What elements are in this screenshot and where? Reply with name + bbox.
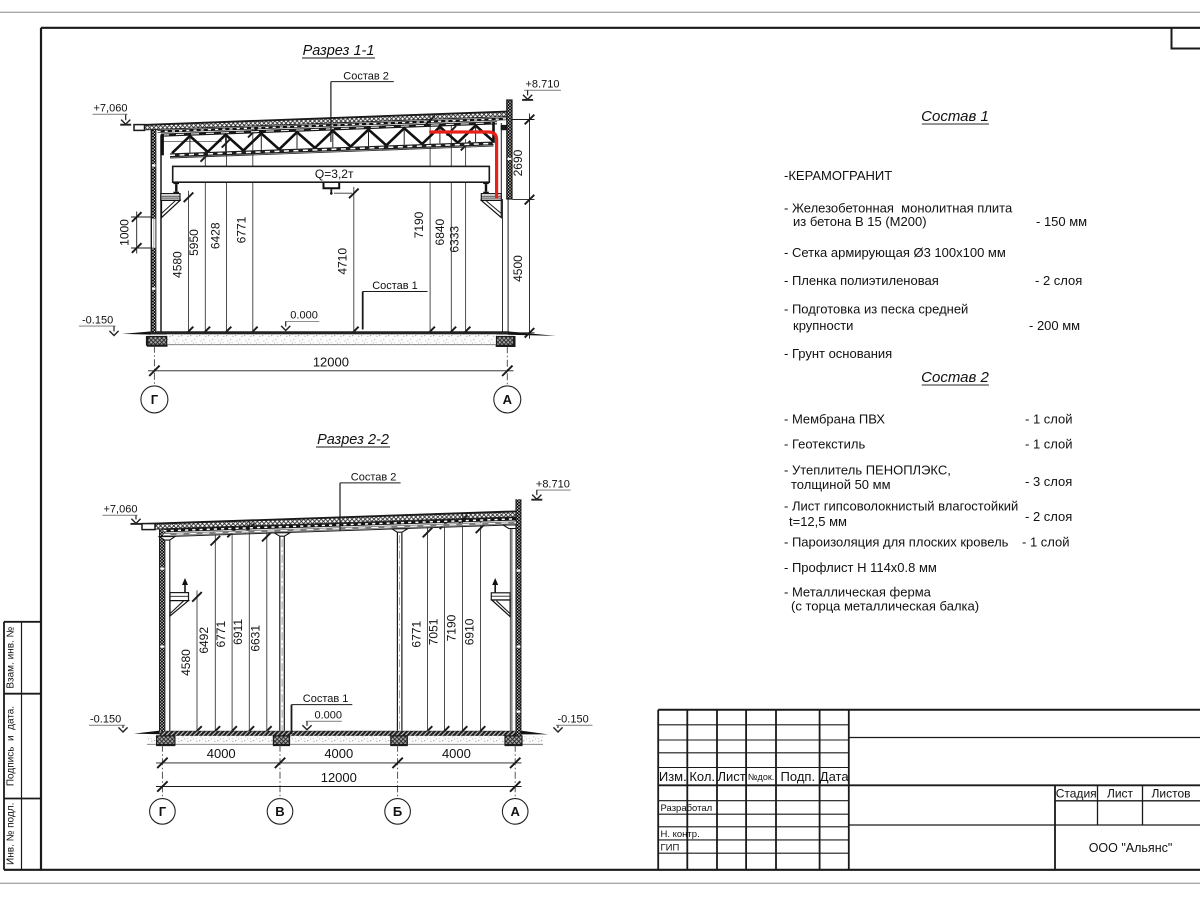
svg-text:Разработал: Разработал bbox=[661, 803, 713, 814]
svg-text:Состав 1: Состав 1 bbox=[303, 693, 349, 705]
svg-text:Г: Г bbox=[151, 392, 159, 407]
svg-text:(с торца металлическая балка): (с торца металлическая балка) bbox=[791, 599, 979, 614]
svg-text:+7,060: +7,060 bbox=[94, 103, 128, 115]
svg-text:- Сетка армирующая Ø3 100х100: - Сетка армирующая Ø3 100х100 мм bbox=[784, 245, 1006, 260]
svg-text:Дата: Дата bbox=[820, 769, 850, 784]
svg-text:Стадия: Стадия bbox=[1056, 787, 1097, 801]
svg-text:- Пленка полиэтиленовая: - Пленка полиэтиленовая bbox=[784, 273, 939, 288]
svg-text:6771: 6771 bbox=[235, 216, 249, 243]
svg-text:В: В bbox=[275, 804, 284, 819]
svg-text:- 150 мм: - 150 мм bbox=[1036, 214, 1087, 229]
svg-text:+8.710: +8.710 bbox=[536, 478, 570, 490]
svg-text:Подп.: Подп. bbox=[781, 769, 816, 784]
svg-text:Состав 1: Состав 1 bbox=[921, 108, 989, 125]
svg-text:Кол.: Кол. bbox=[689, 769, 715, 784]
svg-text:0.000: 0.000 bbox=[315, 710, 343, 722]
svg-text:- 1 слой: - 1 слой bbox=[1025, 437, 1073, 452]
svg-text:1000: 1000 bbox=[118, 219, 132, 246]
svg-text:Q=3,2т: Q=3,2т bbox=[315, 167, 354, 181]
svg-text:- Лист гипсоволокнистый влагос: - Лист гипсоволокнистый влагостойкий bbox=[784, 499, 1018, 514]
svg-text:- 200 мм: - 200 мм bbox=[1029, 318, 1080, 333]
svg-text:Листов: Листов bbox=[1152, 787, 1191, 801]
svg-text:t=12,5 мм: t=12,5 мм bbox=[789, 514, 847, 529]
svg-text:6910: 6910 bbox=[462, 618, 476, 645]
svg-text:из бетона В 15 (М200): из бетона В 15 (М200) bbox=[793, 214, 927, 229]
svg-text:Состав 2: Состав 2 bbox=[351, 472, 397, 484]
svg-text:Г: Г bbox=[159, 804, 167, 819]
svg-text:ГИП: ГИП bbox=[661, 842, 680, 853]
svg-text:толщиной 50 мм: толщиной 50 мм bbox=[791, 477, 891, 492]
svg-text:- Пароизоляция для плоских кро: - Пароизоляция для плоских кровель bbox=[784, 535, 1009, 550]
svg-text:6631: 6631 bbox=[249, 625, 263, 652]
svg-text:- 2 слоя: - 2 слоя bbox=[1035, 273, 1082, 288]
svg-text:А: А bbox=[511, 804, 521, 819]
svg-text:4500: 4500 bbox=[511, 255, 525, 282]
svg-text:Изм.: Изм. bbox=[659, 769, 687, 784]
svg-text:4000: 4000 bbox=[207, 746, 236, 761]
svg-text:Н. контр.: Н. контр. bbox=[661, 829, 700, 840]
svg-text:6428: 6428 bbox=[208, 222, 222, 249]
svg-text:Разрез 2-2: Разрез 2-2 bbox=[317, 432, 389, 448]
svg-text:- 2 слоя: - 2 слоя bbox=[1025, 509, 1072, 524]
svg-text:-0.150: -0.150 bbox=[90, 714, 121, 726]
svg-text:6771: 6771 bbox=[214, 621, 228, 648]
svg-text:Подпись и дата.: Подпись и дата. bbox=[6, 706, 17, 786]
svg-text:- Металлическая ферма: - Металлическая ферма bbox=[784, 585, 932, 600]
svg-text:- 1 слой: - 1 слой bbox=[1022, 535, 1070, 550]
svg-text:7051: 7051 bbox=[426, 618, 440, 645]
svg-text:Инв. № подл.: Инв. № подл. bbox=[6, 803, 17, 865]
svg-text:- Профлист Н 114х0.8 мм: - Профлист Н 114х0.8 мм bbox=[784, 560, 937, 575]
svg-text:-0.150: -0.150 bbox=[558, 714, 589, 726]
svg-text:Б: Б bbox=[393, 804, 402, 819]
svg-text:- Геотекстиль: - Геотекстиль bbox=[784, 437, 865, 452]
svg-text:6911: 6911 bbox=[231, 619, 245, 645]
svg-text:-КЕРАМОГРАНИТ: -КЕРАМОГРАНИТ bbox=[784, 168, 892, 183]
svg-text:Разрез 1-1: Разрез 1-1 bbox=[303, 43, 375, 59]
svg-text:Лист: Лист bbox=[717, 769, 745, 784]
svg-text:+8.710: +8.710 bbox=[526, 79, 560, 91]
svg-text:Состав 1: Состав 1 bbox=[372, 280, 418, 292]
svg-text:-0.150: -0.150 bbox=[82, 314, 113, 326]
svg-text:4000: 4000 bbox=[442, 746, 471, 761]
svg-text:- Грунт основания: - Грунт основания bbox=[784, 346, 892, 361]
svg-text:2690: 2690 bbox=[511, 149, 525, 176]
svg-text:6771: 6771 bbox=[409, 621, 423, 648]
svg-text:12000: 12000 bbox=[321, 770, 357, 785]
svg-text:4580: 4580 bbox=[179, 649, 193, 676]
svg-text:Взам. инв. №: Взам. инв. № bbox=[6, 626, 17, 688]
svg-text:Состав 2: Состав 2 bbox=[921, 369, 989, 386]
svg-text:5950: 5950 bbox=[187, 229, 201, 256]
svg-text:ООО "Альянс": ООО "Альянс" bbox=[1089, 841, 1173, 855]
svg-text:Лист: Лист bbox=[1107, 787, 1134, 801]
svg-text:7190: 7190 bbox=[444, 614, 458, 641]
svg-text:- Мембрана ПВХ: - Мембрана ПВХ bbox=[784, 412, 885, 427]
svg-text:4710: 4710 bbox=[336, 248, 350, 275]
svg-text:крупности: крупности bbox=[793, 318, 853, 333]
svg-text:6333: 6333 bbox=[447, 226, 461, 253]
svg-text:4580: 4580 bbox=[170, 251, 184, 278]
svg-text:12000: 12000 bbox=[313, 354, 349, 369]
svg-text:А: А bbox=[503, 392, 513, 407]
svg-text:7190: 7190 bbox=[412, 211, 426, 238]
svg-text:0.000: 0.000 bbox=[290, 310, 318, 322]
svg-text:+7,060: +7,060 bbox=[104, 504, 138, 516]
svg-text:6840: 6840 bbox=[433, 218, 447, 245]
svg-text:4000: 4000 bbox=[324, 746, 353, 761]
svg-text:6492: 6492 bbox=[197, 627, 211, 654]
svg-text:- Утеплитель ПЕНОПЛЭКС,: - Утеплитель ПЕНОПЛЭКС, bbox=[784, 463, 951, 478]
svg-text:- 3 слоя: - 3 слоя bbox=[1025, 474, 1072, 489]
svg-text:- 1 слой: - 1 слой bbox=[1025, 412, 1073, 427]
svg-text:№док.: №док. bbox=[748, 772, 774, 782]
svg-text:Состав 2: Состав 2 bbox=[343, 71, 389, 83]
svg-text:- Подготовка из песка средней: - Подготовка из песка средней bbox=[784, 302, 968, 317]
